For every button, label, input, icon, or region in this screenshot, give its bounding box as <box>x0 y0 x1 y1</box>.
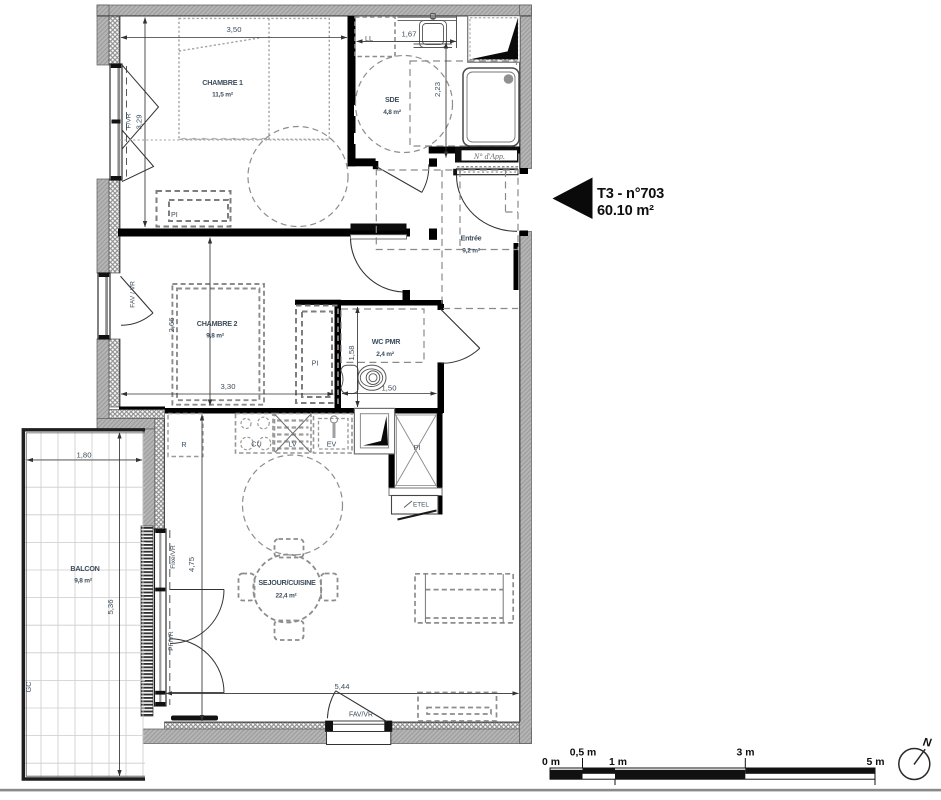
svg-text:Fixe/VR: Fixe/VR <box>170 545 177 569</box>
svg-text:BALCON: BALCON <box>70 564 99 573</box>
svg-text:22,4 m²: 22,4 m² <box>275 593 297 600</box>
svg-text:9,2 m²: 9,2 m² <box>462 248 481 255</box>
svg-text:GC: GC <box>24 682 33 693</box>
svg-text:ETEL: ETEL <box>413 502 429 509</box>
svg-text:CHAMBRE 2: CHAMBRE 2 <box>197 319 238 328</box>
svg-text:3 m: 3 m <box>737 748 755 759</box>
svg-text:1,80: 1,80 <box>77 451 92 460</box>
svg-text:0,5 m: 0,5 m <box>570 748 597 759</box>
svg-text:CHAMBRE 1: CHAMBRE 1 <box>202 78 243 87</box>
svg-text:1 m: 1 m <box>609 757 627 768</box>
svg-text:FAV/VR: FAV/VR <box>349 712 373 719</box>
svg-text:3,30: 3,30 <box>221 382 236 391</box>
svg-text:4,75: 4,75 <box>187 557 196 572</box>
svg-text:N° d'App.: N° d'App. <box>473 152 505 161</box>
svg-text:9,8 m²: 9,8 m² <box>206 333 225 340</box>
svg-text:2,23: 2,23 <box>433 82 442 97</box>
svg-text:WC PMR: WC PMR <box>372 337 402 346</box>
svg-text:PI: PI <box>414 443 421 452</box>
svg-text:2,66: 2,66 <box>167 318 176 333</box>
svg-text:5,44: 5,44 <box>335 682 351 691</box>
svg-text:5 m: 5 m <box>867 757 885 768</box>
svg-text:1,50: 1,50 <box>382 384 397 393</box>
svg-text:1,58: 1,58 <box>347 346 356 361</box>
svg-text:FAV / VR: FAV / VR <box>130 281 137 308</box>
svg-text:3,29: 3,29 <box>135 115 144 130</box>
svg-text:Entrée: Entrée <box>461 234 482 243</box>
svg-text:F/VR: F/VR <box>126 113 133 128</box>
svg-text:EV: EV <box>327 440 337 449</box>
svg-text:0 m: 0 m <box>542 757 560 768</box>
svg-text:T3 - n°703: T3 - n°703 <box>597 186 664 202</box>
svg-text:4,8 m²: 4,8 m² <box>383 109 402 116</box>
svg-text:PI: PI <box>312 359 319 368</box>
svg-text:PI: PI <box>171 210 178 219</box>
svg-text:PF/VR: PF/VR <box>168 631 175 651</box>
svg-text:9,8 m²: 9,8 m² <box>74 578 93 585</box>
svg-text:SEJOUR/CUISINE: SEJOUR/CUISINE <box>258 578 316 587</box>
svg-text:1,67: 1,67 <box>402 30 417 39</box>
svg-text:R: R <box>181 440 186 449</box>
svg-text:2,4 m²: 2,4 m² <box>376 351 395 358</box>
svg-text:3,50: 3,50 <box>227 25 242 34</box>
svg-text:LV: LV <box>288 440 296 449</box>
svg-text:5,36: 5,36 <box>106 600 115 615</box>
svg-text:CU: CU <box>251 440 261 449</box>
svg-text:SDE: SDE <box>385 95 399 104</box>
svg-text:60.10 m²: 60.10 m² <box>597 203 654 219</box>
svg-text:11,5 m²: 11,5 m² <box>212 92 234 99</box>
